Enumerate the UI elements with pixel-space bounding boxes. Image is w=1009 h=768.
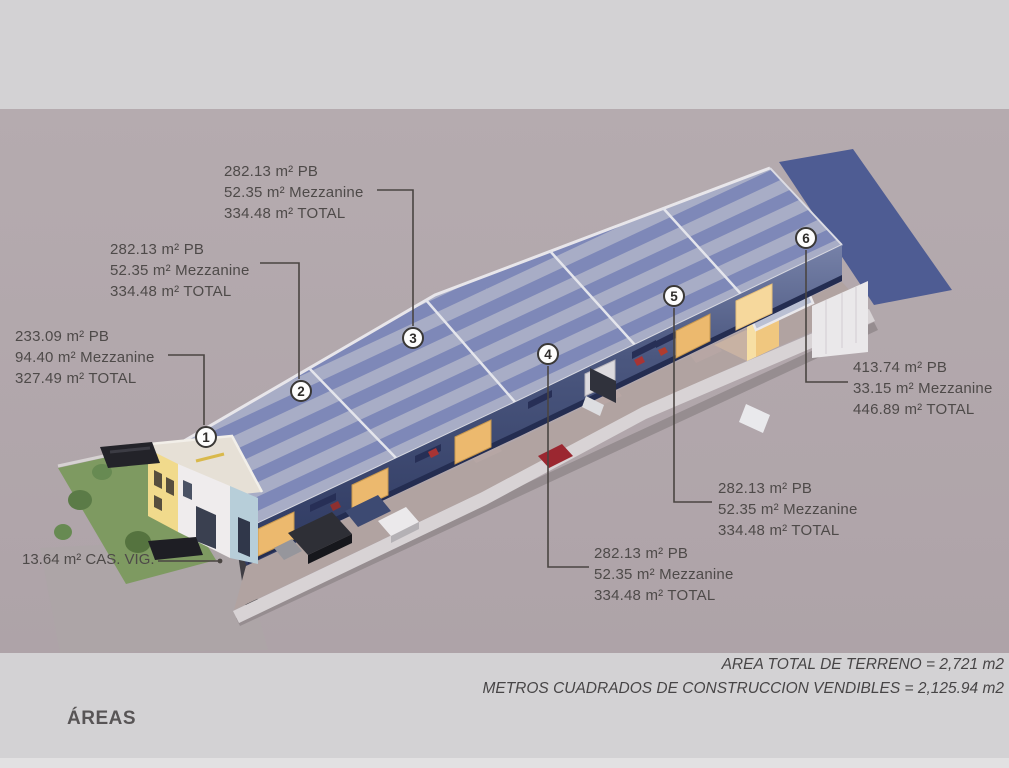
unit-2-area-label: 282.13 m² PB 52.35 m² Mezzanine 334.48 m… [110, 239, 250, 302]
unit-marker-4: 4 [537, 343, 559, 365]
total-sellable-area: METROS CUADRADOS DE CONSTRUCCION VENDIBL… [482, 677, 1004, 701]
unit-4-area-label: 282.13 m² PB 52.35 m² Mezzanine 334.48 m… [594, 543, 734, 606]
areas-slide: 1 2 3 4 5 6 233.09 m² PB 94.40 m² Mezzan… [0, 0, 1009, 768]
unit-marker-6: 6 [795, 227, 817, 249]
tree [54, 524, 72, 540]
unit-mezzanine-area: 94.40 m² Mezzanine [15, 347, 155, 368]
unit-marker-3: 3 [402, 327, 424, 349]
unit-pb-area: 233.09 m² PB [15, 326, 155, 347]
unit-number: 5 [670, 289, 678, 304]
unit-number: 1 [202, 430, 210, 445]
unit-pb-area: 413.74 m² PB [853, 357, 993, 378]
unit-number: 4 [544, 347, 552, 362]
page-title: ÁREAS [67, 708, 136, 730]
unit-mezzanine-area: 52.35 m² Mezzanine [718, 499, 858, 520]
unit-number: 3 [409, 331, 417, 346]
total-land-area: AREA TOTAL DE TERRENO = 2,721 m2 [482, 653, 1004, 677]
unit-number: 2 [297, 384, 305, 399]
unit-mezzanine-area: 52.35 m² Mezzanine [594, 564, 734, 585]
unit-6-area-label: 413.74 m² PB 33.15 m² Mezzanine 446.89 m… [853, 357, 993, 420]
unit-marker-1: 1 [195, 426, 217, 448]
unit-pb-area: 282.13 m² PB [594, 543, 734, 564]
bottom-strip [0, 758, 1009, 768]
guard-house-label: 13.64 m² CAS. VIG. [22, 551, 155, 568]
tree [125, 531, 151, 553]
unit-total-area: 327.49 m² TOTAL [15, 368, 155, 389]
unit-3-area-label: 282.13 m² PB 52.35 m² Mezzanine 334.48 m… [224, 161, 364, 224]
tree [68, 490, 92, 510]
unit-pb-area: 282.13 m² PB [718, 478, 858, 499]
unit-marker-5: 5 [663, 285, 685, 307]
office-door [238, 517, 250, 557]
unit-total-area: 446.89 m² TOTAL [853, 399, 993, 420]
unit-total-area: 334.48 m² TOTAL [110, 281, 250, 302]
unit-5-area-label: 282.13 m² PB 52.35 m² Mezzanine 334.48 m… [718, 478, 858, 541]
unit-total-area: 334.48 m² TOTAL [224, 203, 364, 224]
unit-total-area: 334.48 m² TOTAL [718, 520, 858, 541]
unit-pb-area: 282.13 m² PB [110, 239, 250, 260]
unit-mezzanine-area: 52.35 m² Mezzanine [110, 260, 250, 281]
unit-pb-area: 282.13 m² PB [224, 161, 364, 182]
unit-mezzanine-area: 33.15 m² Mezzanine [853, 378, 993, 399]
unit-1-area-label: 233.09 m² PB 94.40 m² Mezzanine 327.49 m… [15, 326, 155, 389]
unit-mezzanine-area: 52.35 m² Mezzanine [224, 182, 364, 203]
unit-marker-2: 2 [290, 380, 312, 402]
unit-number: 6 [802, 231, 810, 246]
unit-total-area: 334.48 m² TOTAL [594, 585, 734, 606]
totals-summary: AREA TOTAL DE TERRENO = 2,721 m2 METROS … [482, 653, 1004, 701]
